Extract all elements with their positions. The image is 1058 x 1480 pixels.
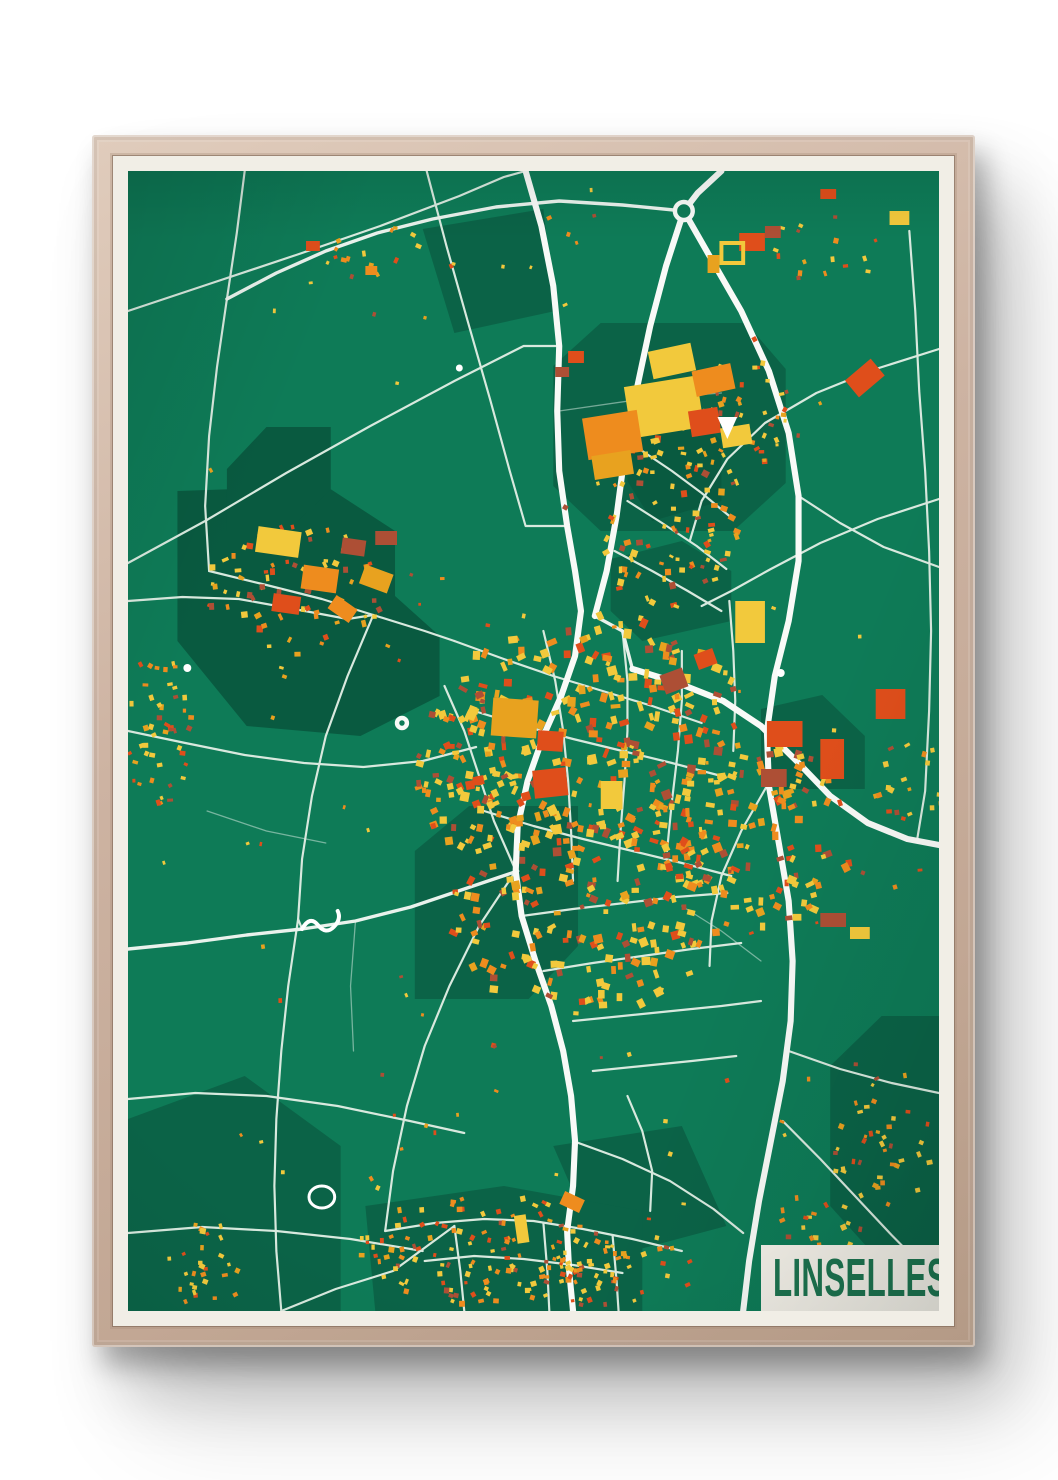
poster-frame: LINSELLES: [92, 135, 975, 1347]
poster-mat: LINSELLES: [113, 156, 954, 1326]
map-title-block: LINSELLES: [761, 1245, 939, 1311]
map-title: LINSELLES: [773, 1251, 939, 1305]
city-map: [128, 171, 939, 1311]
map-print: LINSELLES: [128, 171, 939, 1311]
